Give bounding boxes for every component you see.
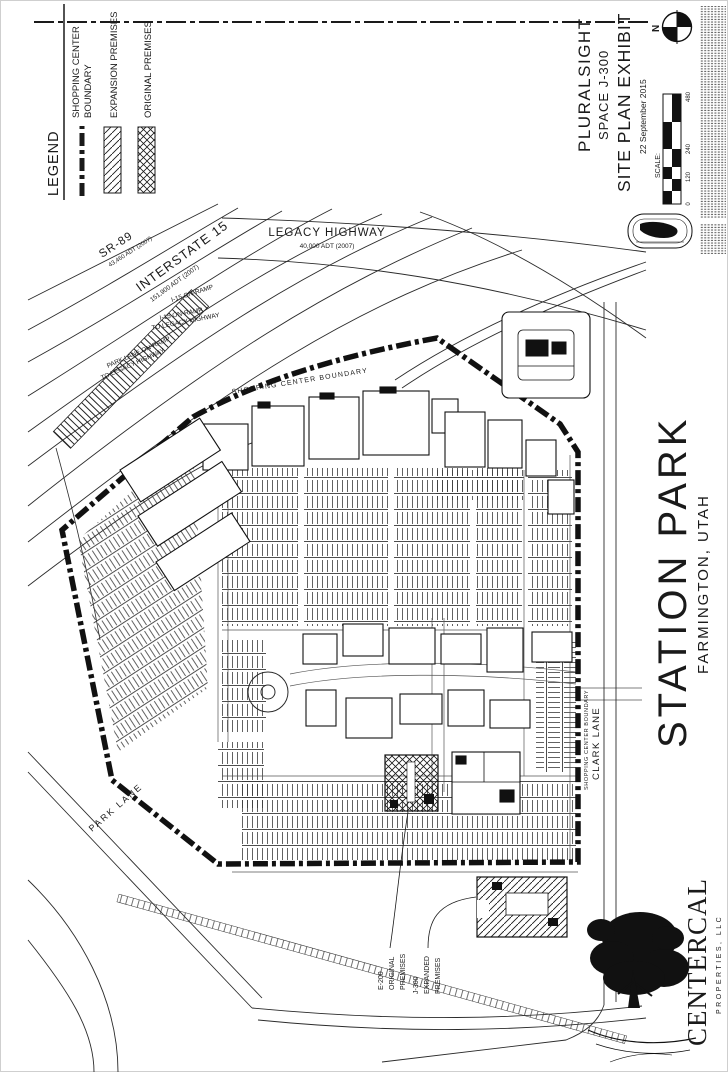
scale-tick-480: 480 <box>686 91 692 102</box>
label-e200-2: ORIGINAL <box>389 956 396 990</box>
project-name: STATION PARK <box>651 416 695 748</box>
j300-building <box>477 877 567 937</box>
legend-title: LEGEND <box>46 130 62 196</box>
legend-boundary-label-1: SHOPPING CENTER <box>71 26 82 118</box>
label-boundary-right: SHOPPING CENTER BOUNDARY <box>584 690 590 790</box>
sheet-title: SITE PLAN EXHIBIT <box>614 13 634 192</box>
space-number: SPACE J-300 <box>596 50 611 140</box>
scale-tick-240: 240 <box>686 143 692 154</box>
sheet-date: 22 September 2015 <box>638 79 648 154</box>
project-location: FARMINGTON, UTAH <box>695 494 712 674</box>
label-legacy-highway: LEGACY HIGHWAY <box>268 227 385 239</box>
e200-building <box>385 755 438 811</box>
label-e200-1: E-200 <box>378 971 385 990</box>
legend-expansion-label: EXPANSION PREMISES <box>109 12 120 118</box>
legend-original-label: ORIGINAL PREMISES <box>143 21 154 118</box>
firm-name: CENTERCAL <box>682 878 712 1046</box>
fineprint-keymap-note <box>700 224 726 254</box>
label-legacy-adt: 40,000 ADT (2007) <box>300 243 355 250</box>
firm-subtitle: PROPERTIES, LLC <box>716 915 723 1014</box>
label-clark-lane: CLARK LANE <box>591 707 602 780</box>
north-label: N <box>651 25 662 32</box>
label-j300-3: PREMISES <box>435 957 442 994</box>
label-j300-2: EXPANDED <box>424 956 431 994</box>
pad-building-ne <box>502 312 590 398</box>
site-plan-sheet: LEGEND SHOPPING CENTER BOUNDARY EXPANSIO… <box>0 0 728 1072</box>
label-j300-1: J-300 <box>413 976 420 994</box>
fineprint-block <box>700 6 726 218</box>
label-e200-3: PREMISES <box>400 953 407 990</box>
site-plan-drawing: LEGEND SHOPPING CENTER BOUNDARY EXPANSIO… <box>0 0 728 1072</box>
legend-original-swatch <box>138 127 155 193</box>
legend-boundary-label-2: BOUNDARY <box>83 64 94 118</box>
client-name: PLURALSIGHT <box>575 17 594 152</box>
scale-label: SCALE: <box>655 153 662 178</box>
scale-tick-120: 120 <box>686 171 692 182</box>
legend-expansion-swatch <box>104 127 121 193</box>
